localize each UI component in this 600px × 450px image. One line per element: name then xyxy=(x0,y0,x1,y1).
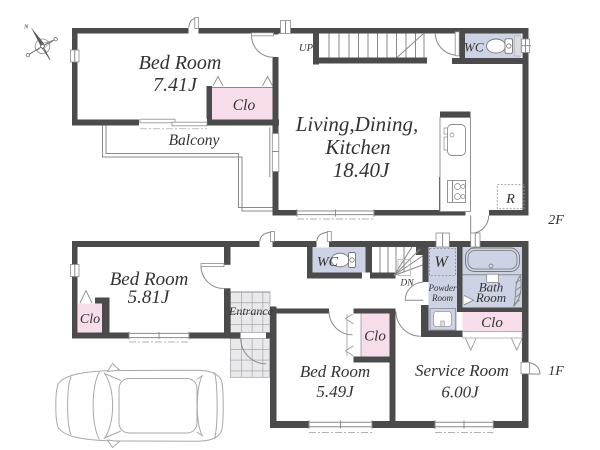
svg-text:6.00J: 6.00J xyxy=(441,383,480,402)
svg-text:Kitchen: Kitchen xyxy=(324,135,390,159)
svg-text:Powder: Powder xyxy=(428,283,457,293)
svg-text:Clo: Clo xyxy=(233,97,256,114)
svg-text:5.81J: 5.81J xyxy=(128,287,171,308)
svg-text:WC: WC xyxy=(317,255,339,270)
svg-text:1F: 1F xyxy=(548,364,564,379)
svg-text:2F: 2F xyxy=(548,213,564,228)
svg-text:Clo: Clo xyxy=(481,315,503,331)
svg-text:Balcony: Balcony xyxy=(169,132,220,149)
svg-text:7.41J: 7.41J xyxy=(153,74,198,96)
svg-text:Clo: Clo xyxy=(80,312,100,327)
svg-text:W: W xyxy=(434,254,449,271)
svg-text:Service Room: Service Room xyxy=(415,361,509,380)
svg-text:UP: UP xyxy=(299,43,314,54)
svg-text:Bed Room: Bed Room xyxy=(139,52,222,74)
svg-text:Living,Dining,: Living,Dining, xyxy=(295,112,419,136)
svg-text:Entrance: Entrance xyxy=(228,304,274,318)
svg-text:5.49J: 5.49J xyxy=(316,382,355,401)
svg-text:DN: DN xyxy=(399,279,414,289)
svg-text:N: N xyxy=(23,24,29,31)
svg-text:WC: WC xyxy=(464,40,484,55)
svg-text:Bed Room: Bed Room xyxy=(300,362,370,381)
svg-text:R: R xyxy=(505,192,515,207)
svg-text:Clo: Clo xyxy=(364,329,386,345)
svg-text:Room: Room xyxy=(431,293,453,303)
svg-text:Room: Room xyxy=(475,290,506,305)
svg-text:18.40J: 18.40J xyxy=(333,158,391,182)
